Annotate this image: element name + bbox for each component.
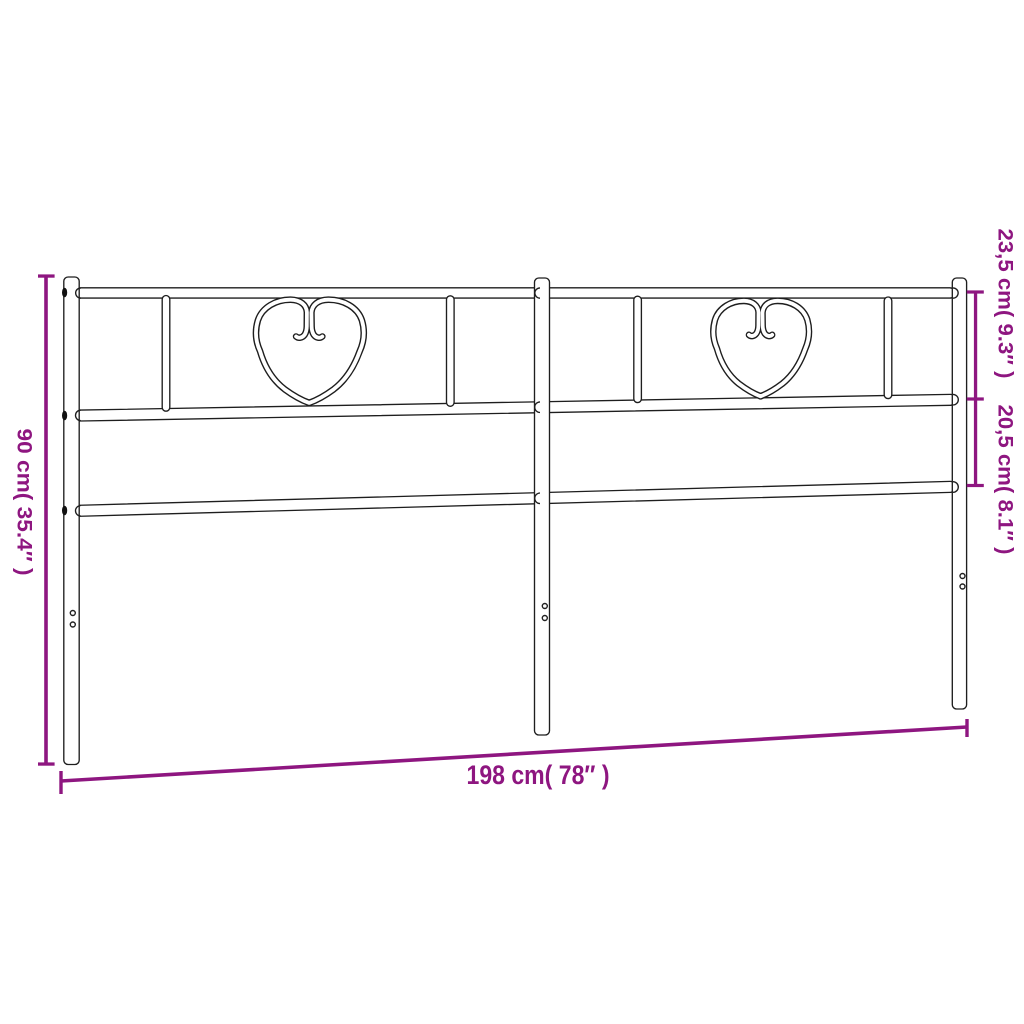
- svg-text:198 cm( 78″ ): 198 cm( 78″ ): [467, 760, 610, 790]
- svg-text:23,5 cm( 9.3″ ): 23,5 cm( 9.3″ ): [994, 229, 1018, 379]
- svg-text:20,5 cm( 8.1″ ): 20,5 cm( 8.1″ ): [994, 405, 1018, 555]
- svg-text:90 cm( 35.4″ ): 90 cm( 35.4″ ): [13, 429, 37, 576]
